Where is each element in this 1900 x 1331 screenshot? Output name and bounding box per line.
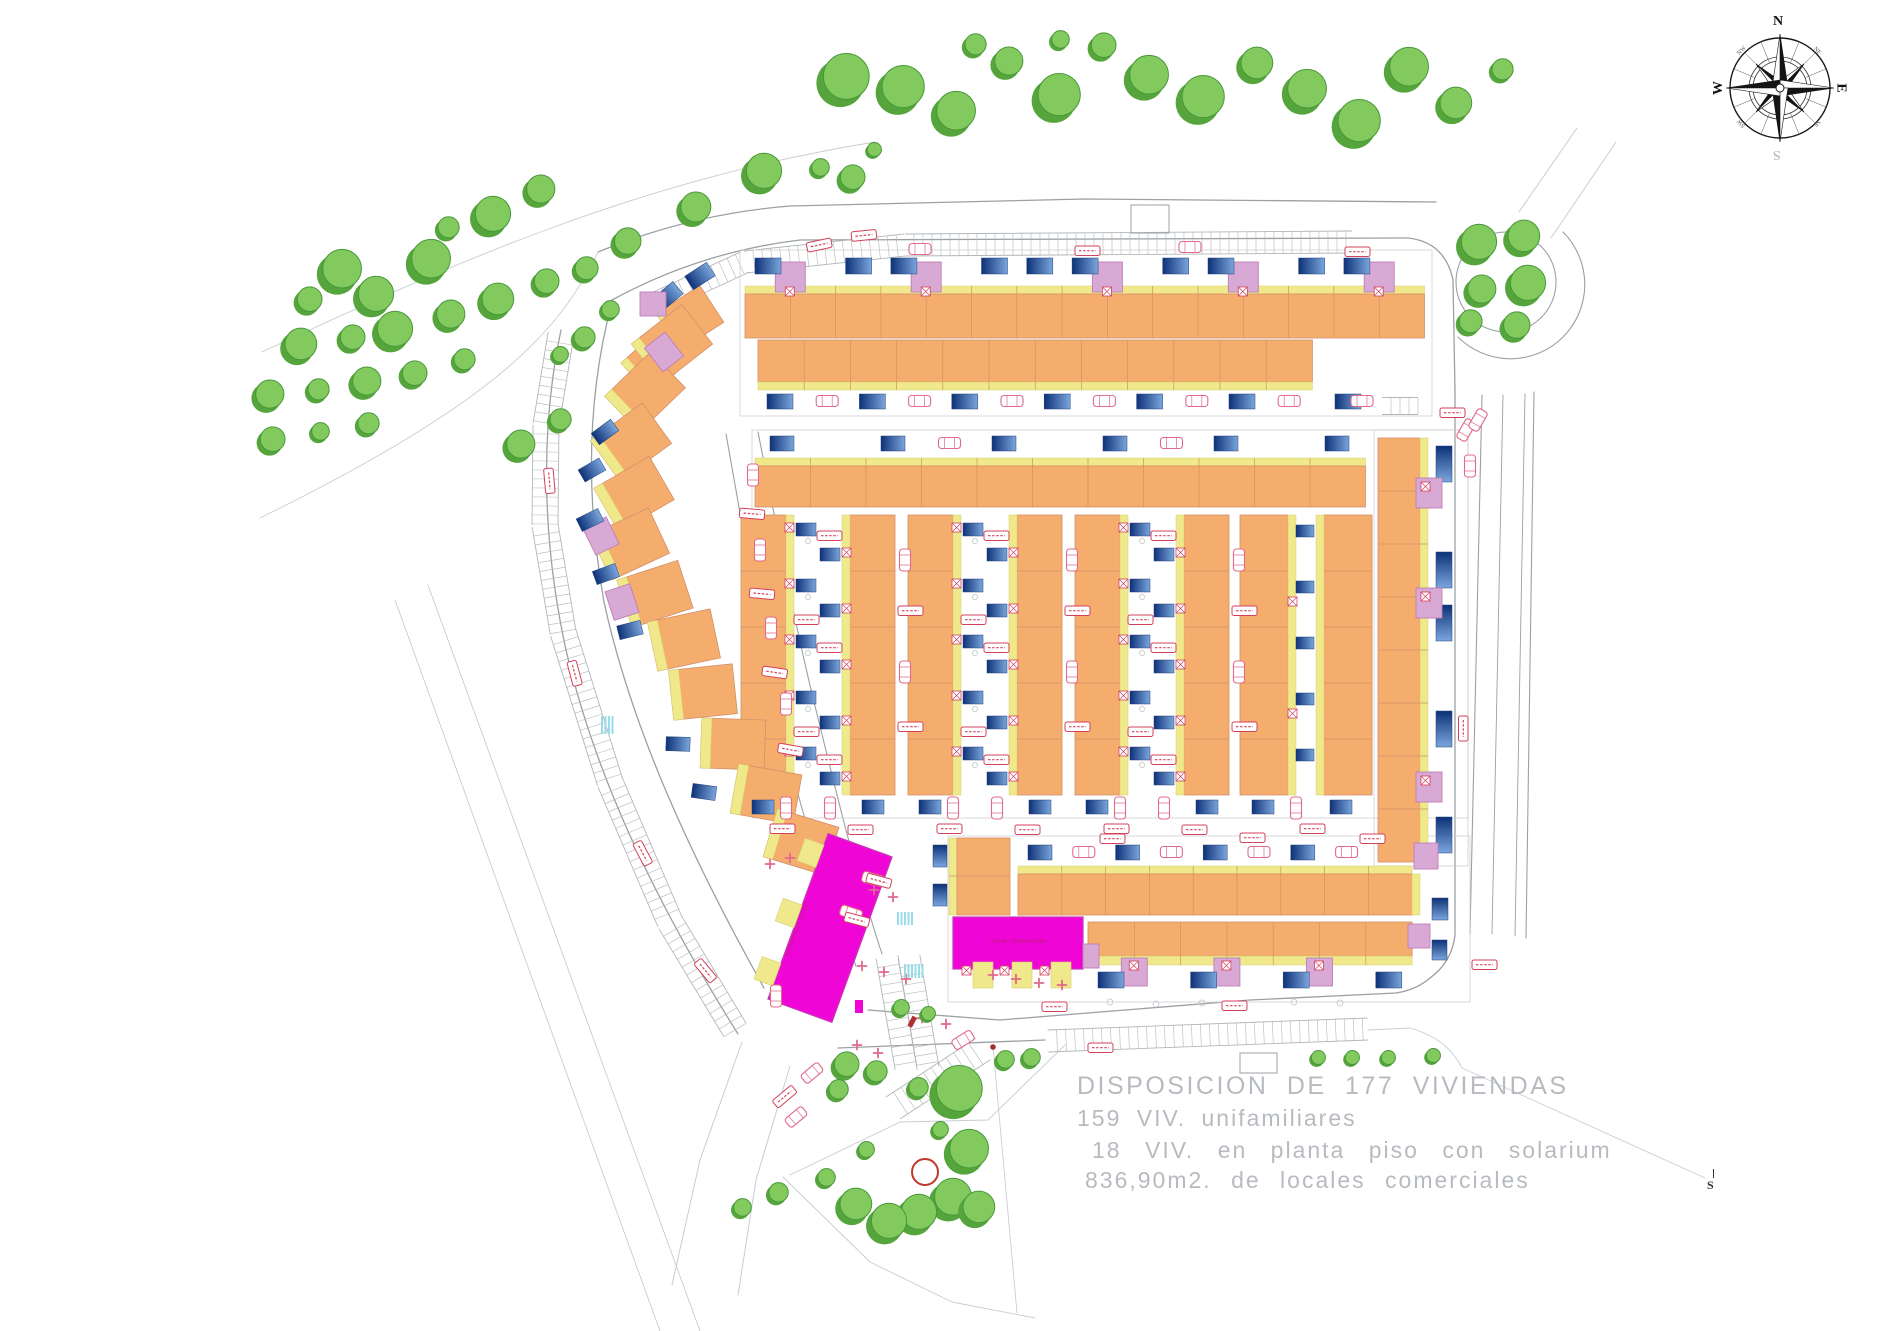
utility-symbol (1238, 287, 1247, 296)
tree (353, 276, 394, 317)
compass-west-label: W (1711, 81, 1727, 95)
tree (1124, 55, 1169, 100)
pool (767, 394, 793, 409)
pool (952, 394, 978, 409)
arc-house (669, 664, 738, 720)
legend-unifamiliares: 159 VIV. unifamiliares (1077, 1105, 1357, 1132)
utility-symbol (1119, 747, 1128, 756)
parked-car (939, 438, 961, 449)
tree (1463, 275, 1495, 308)
pool (1072, 258, 1098, 274)
legend-planta-piso: 18 VIV. en planta piso con solarium (1092, 1137, 1612, 1164)
tree (906, 1078, 928, 1101)
parked-car (1093, 396, 1115, 407)
pool (820, 548, 840, 561)
parked-car (1159, 797, 1170, 819)
utility-symbol (1009, 548, 1018, 557)
tree (1020, 1049, 1040, 1070)
tree (731, 1199, 751, 1220)
tree (1049, 31, 1069, 52)
pool (1436, 711, 1452, 747)
sheet-mark-letter: S (1707, 1178, 1714, 1193)
utility-symbol (1119, 523, 1128, 532)
tree (502, 430, 534, 463)
pool (820, 660, 840, 673)
tree (522, 175, 554, 208)
lot-label (1440, 408, 1465, 418)
pool (846, 258, 872, 274)
lot-label (898, 606, 923, 616)
pool (820, 604, 840, 617)
tree (1489, 59, 1513, 84)
terraced-band (1075, 515, 1229, 795)
lot-label (984, 531, 1009, 541)
tree (611, 228, 641, 259)
pool (933, 884, 947, 906)
streetlight-symbol (858, 962, 867, 971)
lot-label (1065, 606, 1090, 616)
pool (1325, 436, 1349, 451)
utility-symbol (785, 579, 794, 588)
utility-symbol (1374, 287, 1383, 296)
pool (796, 523, 816, 536)
tree (863, 1061, 887, 1086)
parked-car (1351, 396, 1373, 407)
pool (919, 800, 941, 814)
highlight-circle (912, 1159, 938, 1185)
utility-symbol (1009, 772, 1018, 781)
utility-symbol (1119, 691, 1128, 700)
utility-symbol (962, 966, 971, 975)
pool (1296, 637, 1314, 649)
tree (865, 142, 881, 158)
utility-symbol (785, 635, 794, 644)
tree (1379, 1050, 1395, 1066)
tree (251, 380, 283, 413)
lot-label (1128, 727, 1153, 737)
utility-symbol (1315, 961, 1324, 970)
lot-label (984, 643, 1009, 653)
tree (399, 361, 427, 390)
pool (796, 691, 816, 704)
legend-title: DISPOSICION DE 177 VIVIENDAS (1077, 1072, 1569, 1101)
pool (1436, 552, 1452, 588)
utility-symbol (1176, 772, 1185, 781)
tree (962, 34, 986, 59)
pool (1196, 800, 1218, 814)
tree (372, 311, 413, 352)
utility-symbol (1009, 660, 1018, 669)
pool (1044, 394, 1070, 409)
tree (831, 1052, 859, 1081)
utility-symbol (1176, 604, 1185, 613)
pool (1130, 691, 1150, 704)
tree (826, 1080, 848, 1103)
arc-house (700, 718, 766, 770)
parked-car (784, 1106, 808, 1129)
pool (933, 845, 947, 867)
tree (470, 196, 511, 237)
lot-label (1345, 247, 1370, 257)
tree (809, 159, 829, 180)
tree (741, 153, 782, 194)
tree (931, 91, 976, 136)
lot-label (1300, 824, 1325, 834)
lot-label (961, 615, 986, 625)
terraced-row-d (1018, 866, 1420, 915)
commercial-building-2 (953, 917, 1099, 988)
utility-symbol (1176, 716, 1185, 725)
lot-label (1151, 531, 1176, 541)
pool (1137, 394, 1163, 409)
pool (1028, 845, 1052, 860)
parked-car (948, 797, 959, 819)
tree (1309, 1050, 1325, 1066)
pool (1154, 772, 1174, 785)
lot-label (1128, 615, 1153, 625)
parked-car (992, 797, 1003, 819)
tree (280, 328, 317, 365)
tree (305, 379, 329, 404)
tree (944, 1129, 989, 1174)
parked-car (1001, 396, 1023, 407)
pool (1214, 436, 1238, 451)
legend-locales: 836,90m2. de locales comerciales (1085, 1167, 1530, 1194)
parked-car (748, 464, 759, 486)
lot-label (739, 508, 765, 520)
lot-label (1459, 716, 1469, 741)
tree (1384, 47, 1429, 92)
site-plan-canvas (0, 0, 1900, 1331)
tree (1435, 87, 1472, 124)
utility-symbol (952, 747, 961, 756)
tree (1500, 312, 1530, 343)
tree (355, 413, 379, 438)
parked-car (1291, 797, 1302, 819)
utility-symbol (952, 635, 961, 644)
utility-symbol (952, 579, 961, 588)
tree (435, 217, 459, 242)
tree (599, 301, 619, 322)
tree (930, 1122, 948, 1141)
utility-symbol (1129, 961, 1138, 970)
pool (1130, 523, 1150, 536)
lot-label (1088, 1043, 1113, 1053)
utility-symbol (1421, 482, 1430, 491)
parked-car (1115, 797, 1126, 819)
pool (982, 258, 1008, 274)
parked-car (1234, 549, 1245, 571)
lot-label (1222, 1001, 1247, 1011)
parked-car (1067, 661, 1078, 683)
pool (859, 394, 885, 409)
parked-car (1278, 396, 1300, 407)
pool (963, 747, 983, 760)
parked-car (781, 797, 792, 819)
pool (1086, 800, 1108, 814)
lot-label (961, 727, 986, 737)
parked-car (1465, 455, 1476, 477)
utility-symbol (785, 287, 794, 296)
utility-symbol (1176, 660, 1185, 669)
pool (1098, 972, 1124, 988)
pool (963, 691, 983, 704)
tree (919, 1006, 935, 1022)
utility-symbol (842, 660, 851, 669)
utility-symbol (1000, 966, 1009, 975)
pool (862, 800, 884, 814)
pool (963, 579, 983, 592)
lot-label (1065, 722, 1090, 732)
pool (987, 716, 1007, 729)
tree (866, 1203, 907, 1244)
pool (755, 258, 781, 274)
parked-car (1160, 847, 1182, 858)
tree (337, 325, 365, 354)
pool (820, 716, 840, 729)
pool (796, 635, 816, 648)
tree (1424, 1048, 1440, 1064)
pool (1154, 660, 1174, 673)
pool (1116, 845, 1140, 860)
mini-column (949, 838, 1010, 915)
lot-label (1100, 834, 1125, 844)
tree (1236, 47, 1273, 84)
lot-label (1151, 643, 1176, 653)
pool (987, 604, 1007, 617)
pool (1432, 940, 1447, 960)
utility-symbol (1119, 635, 1128, 644)
utility-symbol (842, 548, 851, 557)
terraced-band (908, 515, 1062, 795)
parked-car (1186, 396, 1208, 407)
tree (816, 54, 869, 108)
lot-label (1104, 824, 1129, 834)
lot-label (1182, 825, 1207, 835)
lot-label (1472, 960, 1497, 970)
tree (676, 192, 711, 227)
pool (752, 800, 774, 814)
tree (451, 349, 475, 374)
streetlight-symbol (942, 1020, 951, 1029)
pool (1163, 258, 1189, 274)
utility-symbol (1421, 592, 1430, 601)
parked-car (1067, 549, 1078, 571)
lot-label (1232, 606, 1257, 616)
terraced-row-c (755, 458, 1366, 507)
utility-symbol (842, 772, 851, 781)
lot-label (1360, 834, 1385, 844)
pool (1154, 548, 1174, 561)
utility-symbol (842, 604, 851, 613)
tree (257, 427, 285, 456)
pool (1103, 436, 1127, 451)
streetlight-symbol (853, 1041, 862, 1050)
utility-symbol (952, 523, 961, 532)
parked-car (816, 396, 838, 407)
pool (1376, 972, 1402, 988)
tree (572, 257, 598, 284)
pool (881, 436, 905, 451)
pool (1296, 749, 1314, 761)
tree (929, 1066, 982, 1120)
utility-symbol (921, 287, 930, 296)
lot-label (817, 643, 842, 653)
parked-car (900, 549, 911, 571)
utility-symbol (1009, 716, 1018, 725)
parked-car (825, 797, 836, 819)
pool (820, 772, 840, 785)
lot-label (848, 825, 873, 835)
pool (963, 523, 983, 536)
pool (1029, 800, 1051, 814)
parked-car (766, 617, 777, 639)
tree (317, 249, 362, 294)
tree (766, 1183, 788, 1206)
pool (992, 436, 1016, 451)
tree (547, 409, 571, 434)
lot-label (544, 468, 556, 494)
pool (1296, 693, 1314, 705)
pool (1291, 845, 1315, 860)
tree (837, 165, 865, 194)
pool (1130, 635, 1150, 648)
lot-label (898, 722, 923, 732)
tree (815, 1169, 835, 1190)
tree (1176, 75, 1225, 124)
parked-car (771, 985, 782, 1007)
terraced-row-b (758, 340, 1312, 390)
pool (1344, 258, 1370, 274)
tree (432, 300, 464, 333)
streetlight-symbol (766, 860, 775, 869)
utility-symbol (1040, 966, 1049, 975)
pool (891, 258, 917, 274)
tree (856, 1142, 874, 1161)
utility-symbol (952, 691, 961, 700)
parked-car (1248, 847, 1270, 858)
pool (1130, 747, 1150, 760)
tree (309, 423, 329, 444)
compass-north-label: N (1773, 14, 1783, 30)
pool (770, 436, 794, 451)
lot-label (794, 727, 819, 737)
tree (1032, 73, 1081, 122)
utility-symbol (1009, 604, 1018, 613)
tree (994, 1051, 1014, 1072)
lot-label (817, 531, 842, 541)
compass-east-label: E (1833, 83, 1849, 92)
streetlight-symbol (889, 893, 898, 902)
site-plan-page: DISPOSICION DE 177 VIVIENDAS 159 VIV. un… (0, 0, 1900, 1331)
commercial-building-2-label: LOCAL COMERCIAL (977, 939, 1059, 945)
tree (891, 1000, 909, 1019)
lot-label (817, 755, 842, 765)
utility-symbol (842, 716, 851, 725)
pool (1296, 525, 1314, 537)
utility-symbol (1119, 579, 1128, 588)
utility-symbol (1176, 548, 1185, 557)
lot-label (567, 660, 583, 687)
tree (1343, 1050, 1359, 1066)
parked-car (1161, 438, 1183, 449)
tree (531, 269, 559, 298)
parked-car (909, 396, 931, 407)
lot-label (984, 755, 1009, 765)
lot-label (937, 824, 962, 834)
utility-symbol (785, 523, 794, 532)
lot-label (749, 588, 775, 600)
utility-symbol (1421, 776, 1430, 785)
pool (987, 772, 1007, 785)
parked-car (1073, 847, 1095, 858)
tree (348, 367, 380, 400)
pool (1229, 394, 1255, 409)
pool (1252, 800, 1274, 814)
lot-label (1151, 755, 1176, 765)
pool (1283, 972, 1309, 988)
tree (294, 287, 322, 316)
utility-symbol (1102, 287, 1111, 296)
utility-symbol (1288, 597, 1297, 606)
pool (1299, 258, 1325, 274)
utility-symbol (1288, 709, 1297, 718)
parked-car (1179, 242, 1201, 253)
streetlight-symbol (1035, 979, 1044, 988)
parked-car (909, 244, 931, 255)
pool (1296, 581, 1314, 593)
utility-symbol (1222, 961, 1231, 970)
pool (1330, 800, 1352, 814)
lot-label (770, 824, 795, 834)
pool (1130, 579, 1150, 592)
parked-car (800, 1062, 824, 1085)
pool (963, 635, 983, 648)
tree (406, 239, 451, 284)
tree (1456, 224, 1497, 265)
tree (1088, 33, 1116, 62)
lot-label (1015, 825, 1040, 835)
lot-label (772, 1085, 797, 1108)
parked-car (900, 661, 911, 683)
lot-label (1240, 833, 1265, 843)
tree (477, 283, 514, 320)
tree (1456, 310, 1482, 337)
pool (987, 548, 1007, 561)
lot-label (794, 615, 819, 625)
pool (1432, 898, 1448, 920)
pool (1436, 446, 1452, 482)
tree (876, 65, 925, 114)
compass-south-label: S (1773, 146, 1781, 162)
pool (1154, 716, 1174, 729)
lot-label (851, 229, 877, 241)
pool (987, 660, 1007, 673)
pool (1203, 845, 1227, 860)
tree (1282, 69, 1327, 114)
tree (835, 1188, 872, 1225)
pool (1208, 258, 1234, 274)
pool (1154, 604, 1174, 617)
tree (571, 327, 595, 352)
tree (1503, 220, 1540, 257)
pool (1027, 258, 1053, 274)
streetlight-symbol (874, 1049, 883, 1058)
lot-label (1042, 1002, 1067, 1012)
parked-car (1234, 661, 1245, 683)
pool (1191, 972, 1217, 988)
parked-car (755, 539, 766, 561)
